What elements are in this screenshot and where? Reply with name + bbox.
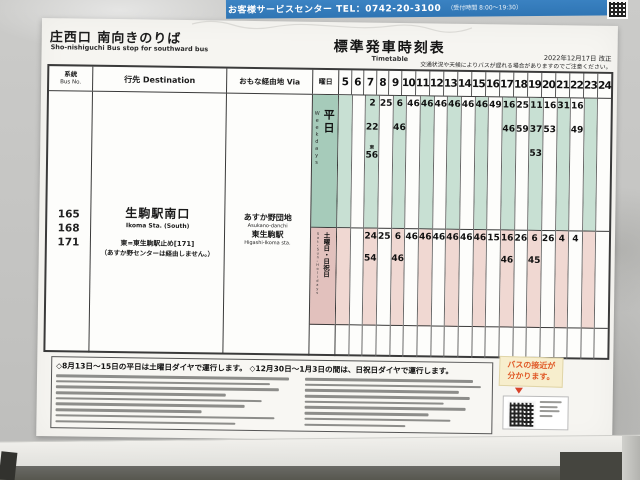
destination-ja: 生駒駅南口 — [91, 204, 224, 223]
departure-minute: 46 — [448, 100, 461, 124]
qr-code-icon — [507, 401, 535, 429]
down-arrow-icon — [515, 388, 523, 394]
departure-minute: 6 — [393, 99, 406, 123]
departure-minute: 25 — [380, 99, 393, 123]
timetable-sheet: 庄西口 南向きのりば Sho-nishiguchi Bus stop for s… — [36, 18, 618, 444]
service-center-hours: （受付時間 8:00～19:30） — [447, 2, 522, 12]
hour-header-10: 10 — [402, 71, 416, 95]
departure-minute: 4 — [555, 234, 568, 256]
departure-minute: 59 — [516, 125, 529, 149]
hour-header-15: 15 — [472, 72, 486, 96]
hour-header-21: 21 — [556, 73, 570, 97]
bus-locator-qr-card — [502, 395, 568, 430]
time-cell-weekday-8: 25 — [378, 96, 393, 229]
header-bus-no: 系統 Bus No. — [49, 66, 93, 91]
departure-minute: 26 — [514, 234, 527, 256]
departure-minute: 49 — [489, 100, 502, 124]
time-cell-holiday-15: 46 — [472, 230, 486, 327]
destination-cell: 生駒駅南口 Ikoma Sta. (South) 東=東生駒駅止め[171] （… — [89, 92, 227, 355]
time-cell-holiday-5 — [336, 228, 350, 325]
hour-header-12: 12 — [430, 71, 444, 95]
fine-print — [55, 374, 488, 431]
service-center-bar: お客様サービスセンター TEL：0742-20-3100 （受付時間 8:00～… — [226, 0, 628, 19]
time-cell-holiday-6 — [349, 228, 363, 325]
time-cell-weekday-18: 2559 — [515, 98, 530, 231]
departure-minute: 4 — [569, 234, 582, 256]
pole — [622, 436, 640, 480]
departure-minute: 46 — [500, 255, 513, 277]
timetable-table: 系統 Bus No. 行先 Destination おもな経由地 Via 曜日 … — [43, 64, 613, 360]
time-cell-holiday-14: 46 — [459, 230, 473, 327]
departure-minute: 46 — [461, 100, 474, 124]
time-cell-weekday-10: 46 — [405, 96, 420, 229]
departure-minute: 15 — [487, 233, 500, 255]
departure-minute: 53 — [529, 149, 542, 173]
departure-minute: 46 — [405, 232, 418, 254]
weekday-label: 平日 — [319, 109, 336, 167]
time-cell-weekday-20: 1653 — [542, 98, 557, 231]
departure-minute: 54 — [364, 253, 377, 275]
hour-header-9: 9 — [389, 71, 402, 95]
time-cell-holiday-24 — [595, 232, 609, 329]
ground-corner — [0, 451, 17, 480]
hour-column-24 — [595, 99, 611, 360]
day-label-column: 平日 Weekdays 土曜日・日祝日 Sat・Sun・Holidays — [309, 95, 339, 356]
day-column-empty — [309, 325, 334, 356]
time-grid: 222東562454252564664646464646464646464646… — [335, 95, 611, 360]
time-cell-holiday-12: 46 — [431, 229, 445, 326]
time-cell-weekday-7: 222東56 — [364, 96, 379, 229]
ground-right — [560, 452, 624, 480]
approach-line-2: 分かります。 — [500, 370, 562, 383]
departure-minute: 53 — [543, 125, 556, 149]
departure-minute: 49 — [570, 125, 583, 149]
hour-header-13: 13 — [444, 72, 458, 96]
departure-minute: 46 — [419, 232, 432, 254]
time-cell-weekday-24 — [597, 99, 612, 232]
fine-print-left — [55, 374, 299, 429]
time-cell-weekday-17: 1646 — [501, 97, 516, 230]
header-destination: 行先 Destination — [93, 67, 227, 93]
hour-header-11: 11 — [416, 71, 430, 95]
departure-minute: 11 — [530, 101, 543, 125]
time-cell-holiday-7: 2454 — [363, 229, 377, 326]
hour-header-5: 5 — [339, 70, 352, 94]
bus-stop-photo: お客様サービスセンター TEL：0742-20-3100 （受付時間 8:00～… — [0, 0, 640, 480]
time-cell-weekday-9: 646 — [392, 96, 407, 229]
qr-code-icon — [607, 0, 628, 19]
time-cell-holiday-10: 46 — [404, 229, 418, 326]
departure-minute: 46 — [407, 99, 420, 123]
hour-header-7: 7 — [364, 70, 377, 94]
hour-header-22: 22 — [570, 73, 584, 97]
departure-minute: 46 — [421, 99, 434, 123]
time-cell-weekday-12: 46 — [433, 96, 448, 229]
departure-minute: 2 — [366, 99, 379, 123]
time-cell-weekday-5 — [337, 95, 352, 228]
time-cell-holiday-23 — [582, 232, 596, 329]
time-cell-weekday-23 — [583, 99, 598, 232]
time-cell-holiday-9: 646 — [390, 229, 404, 326]
paper-wrinkle — [192, 16, 512, 34]
bus-approach-banner: バスの接近が 分かります。 — [499, 356, 564, 388]
time-cell-holiday-13: 46 — [445, 230, 459, 327]
time-cell-weekday-6 — [351, 95, 366, 228]
time-cell-holiday-19: 645 — [527, 231, 541, 328]
departure-minute: 31 — [557, 101, 570, 125]
time-cell-holiday-8: 25 — [377, 229, 391, 326]
departure-minute: 46 — [446, 233, 459, 255]
time-cell-weekday-16: 49 — [487, 97, 502, 230]
hour-header-8: 8 — [377, 71, 390, 95]
departure-minute: 16 — [502, 100, 515, 124]
time-cell-weekday-13: 46 — [446, 97, 461, 230]
via-cell: あすか野団地 Asukano-danchi 東生駒駅 Higashi-Ikoma… — [223, 94, 313, 356]
departure-minute: 16 — [501, 233, 514, 255]
departure-minute: 46 — [460, 233, 473, 255]
departure-minute: 22 — [366, 123, 379, 147]
departure-minute: 37 — [529, 125, 542, 149]
hour-header-20: 20 — [542, 73, 556, 97]
hour-header-16: 16 — [486, 72, 500, 96]
time-cell-holiday-11: 46 — [418, 229, 432, 326]
holiday-label-cell: 土曜日・日祝日 Sat・Sun・Holidays — [310, 228, 336, 325]
departure-minute: 16 — [571, 101, 584, 125]
hour-header-row: 56789101112131415161718192021222324 — [339, 70, 611, 98]
time-cell-holiday-21: 4 — [554, 231, 568, 328]
hour-header-18: 18 — [514, 73, 528, 97]
time-cell-weekday-15: 46 — [474, 97, 489, 230]
time-cell-holiday-20: 26 — [541, 231, 555, 328]
departure-minute: 6 — [528, 234, 541, 256]
service-center-text: お客様サービスセンター TEL：0742-20-3100 — [228, 1, 441, 16]
header-day: 曜日 — [313, 70, 339, 94]
time-cell-holiday-22: 4 — [568, 231, 582, 328]
qr-caption-lines — [535, 401, 563, 425]
hour-header-19: 19 — [528, 73, 542, 97]
table-body: 165168171 生駒駅南口 Ikoma Sta. (South) 東=東生駒… — [45, 91, 611, 360]
destination-en: Ikoma Sta. (South) — [91, 222, 224, 231]
hour-header-14: 14 — [458, 72, 472, 96]
via-stop-2-en: Higashi-Ikoma sta. — [225, 240, 310, 247]
time-cell-holiday-17: 1646 — [500, 230, 514, 327]
departure-minute: 東56 — [365, 147, 378, 171]
ground-shadow — [0, 466, 640, 480]
weekday-label-cell: 平日 Weekdays — [311, 95, 338, 228]
hour-header-24: 24 — [598, 74, 611, 98]
time-cell-holiday-18: 26 — [513, 231, 527, 328]
stop-subtitle: Sho-nishiguchi Bus stop for southward bu… — [51, 43, 209, 53]
hour-header-17: 17 — [500, 72, 514, 96]
footer-note-box: ◇8月13日～15日の平日は土曜日ダイヤで運行します。 ◇12月30日～1月3日… — [50, 356, 493, 434]
time-cell-weekday-21: 31 — [556, 98, 571, 231]
departure-minute: 46 — [432, 232, 445, 254]
header-via: おもな経由地 Via — [227, 69, 313, 94]
time-cell-holiday-16: 15 — [486, 230, 500, 327]
header-bus-no-en: Bus No. — [60, 79, 81, 85]
timetable-title-en: Timetable — [371, 55, 408, 64]
weekday-label-en: Weekdays — [313, 111, 320, 167]
hour-header-23: 23 — [584, 74, 598, 98]
departure-minute: 26 — [542, 234, 555, 256]
departure-minute: 46 — [502, 124, 515, 148]
departure-minute: 46 — [391, 254, 404, 276]
departure-minute: 25 — [378, 232, 391, 254]
fine-print-right — [298, 378, 488, 432]
departure-minute: 45 — [528, 256, 541, 278]
time-cell-weekday-19: 113753 — [528, 98, 543, 231]
departure-minute: 46 — [473, 233, 486, 255]
time-cell-weekday-14: 46 — [460, 97, 475, 230]
departure-minute: 46 — [434, 99, 447, 123]
time-cell-weekday-22: 1649 — [569, 98, 584, 231]
time-cell-weekday-11: 46 — [419, 96, 434, 229]
departure-minute: 25 — [516, 101, 529, 125]
hour-header-6: 6 — [352, 70, 365, 94]
departure-minute: 6 — [391, 232, 404, 254]
destination-note-2: （あすか野センターは経由しません。） — [91, 247, 224, 259]
departure-minute: 24 — [364, 232, 377, 254]
bus-no-cell: 165168171 — [45, 91, 93, 353]
holiday-label-en: Sat・Sun・Holidays — [315, 232, 321, 295]
departure-minute: 46 — [393, 123, 406, 147]
route-numbers: 165168171 — [47, 207, 91, 250]
departure-minute: 46 — [475, 100, 488, 124]
departure-minute: 16 — [543, 101, 556, 125]
holiday-label: 土曜日・日祝日 — [320, 232, 331, 295]
